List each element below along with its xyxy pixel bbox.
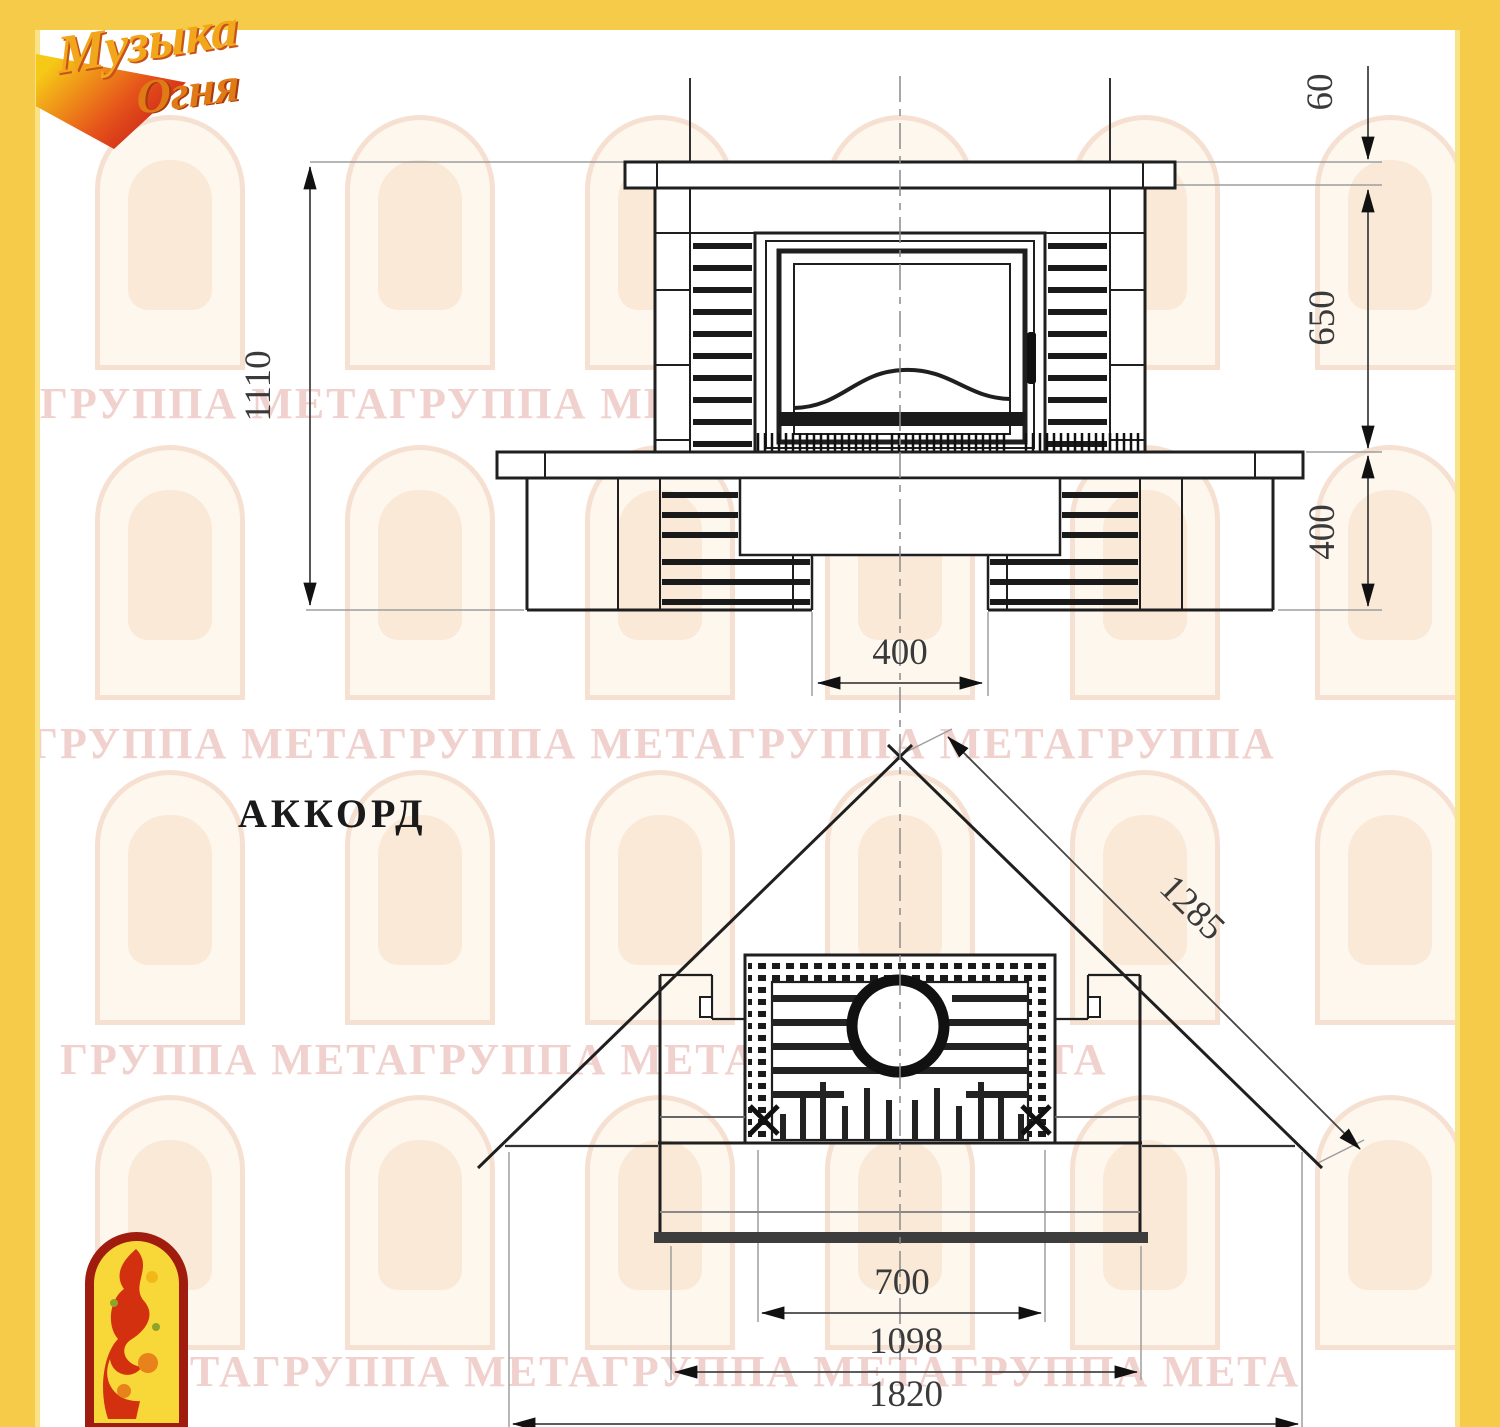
model-name: АККОРД [238,790,427,837]
frame-right-band [1455,30,1500,1427]
air-grille [758,433,1138,451]
drawing-sheet: ГРУППА МЕТАГРУППА МЕТАГРУППА МЕТАГРУППА … [0,0,1500,1427]
frame-left-band [0,30,40,1427]
flame-figure-icon [94,1241,179,1423]
muzyka-ognya-logo: Музыка Огня [18,2,288,142]
dim-opening-width: 700 [874,1262,930,1303]
meta-emblem [85,1232,188,1427]
plinth-front-edge [654,1232,1148,1243]
door-handle [1027,332,1036,384]
flue-outlet [852,980,944,1072]
dim-overall-width: 1820 [869,1374,943,1415]
dim-total-height: 1110 [238,350,279,421]
dim-front-width: 1098 [869,1321,943,1362]
dim-base-height: 400 [1302,504,1343,560]
dim-diagonal-side: 1285 [1151,867,1232,948]
dim-mantel-to-hearth: 650 [1302,290,1343,346]
base-section [527,478,1273,610]
fireplace-technical-drawing: 1110 60 650 400 400 1285 700 1098 1820 [0,0,1500,1427]
dim-recess-width: 400 [872,632,928,673]
dim-mantel-thickness: 60 [1300,74,1341,111]
